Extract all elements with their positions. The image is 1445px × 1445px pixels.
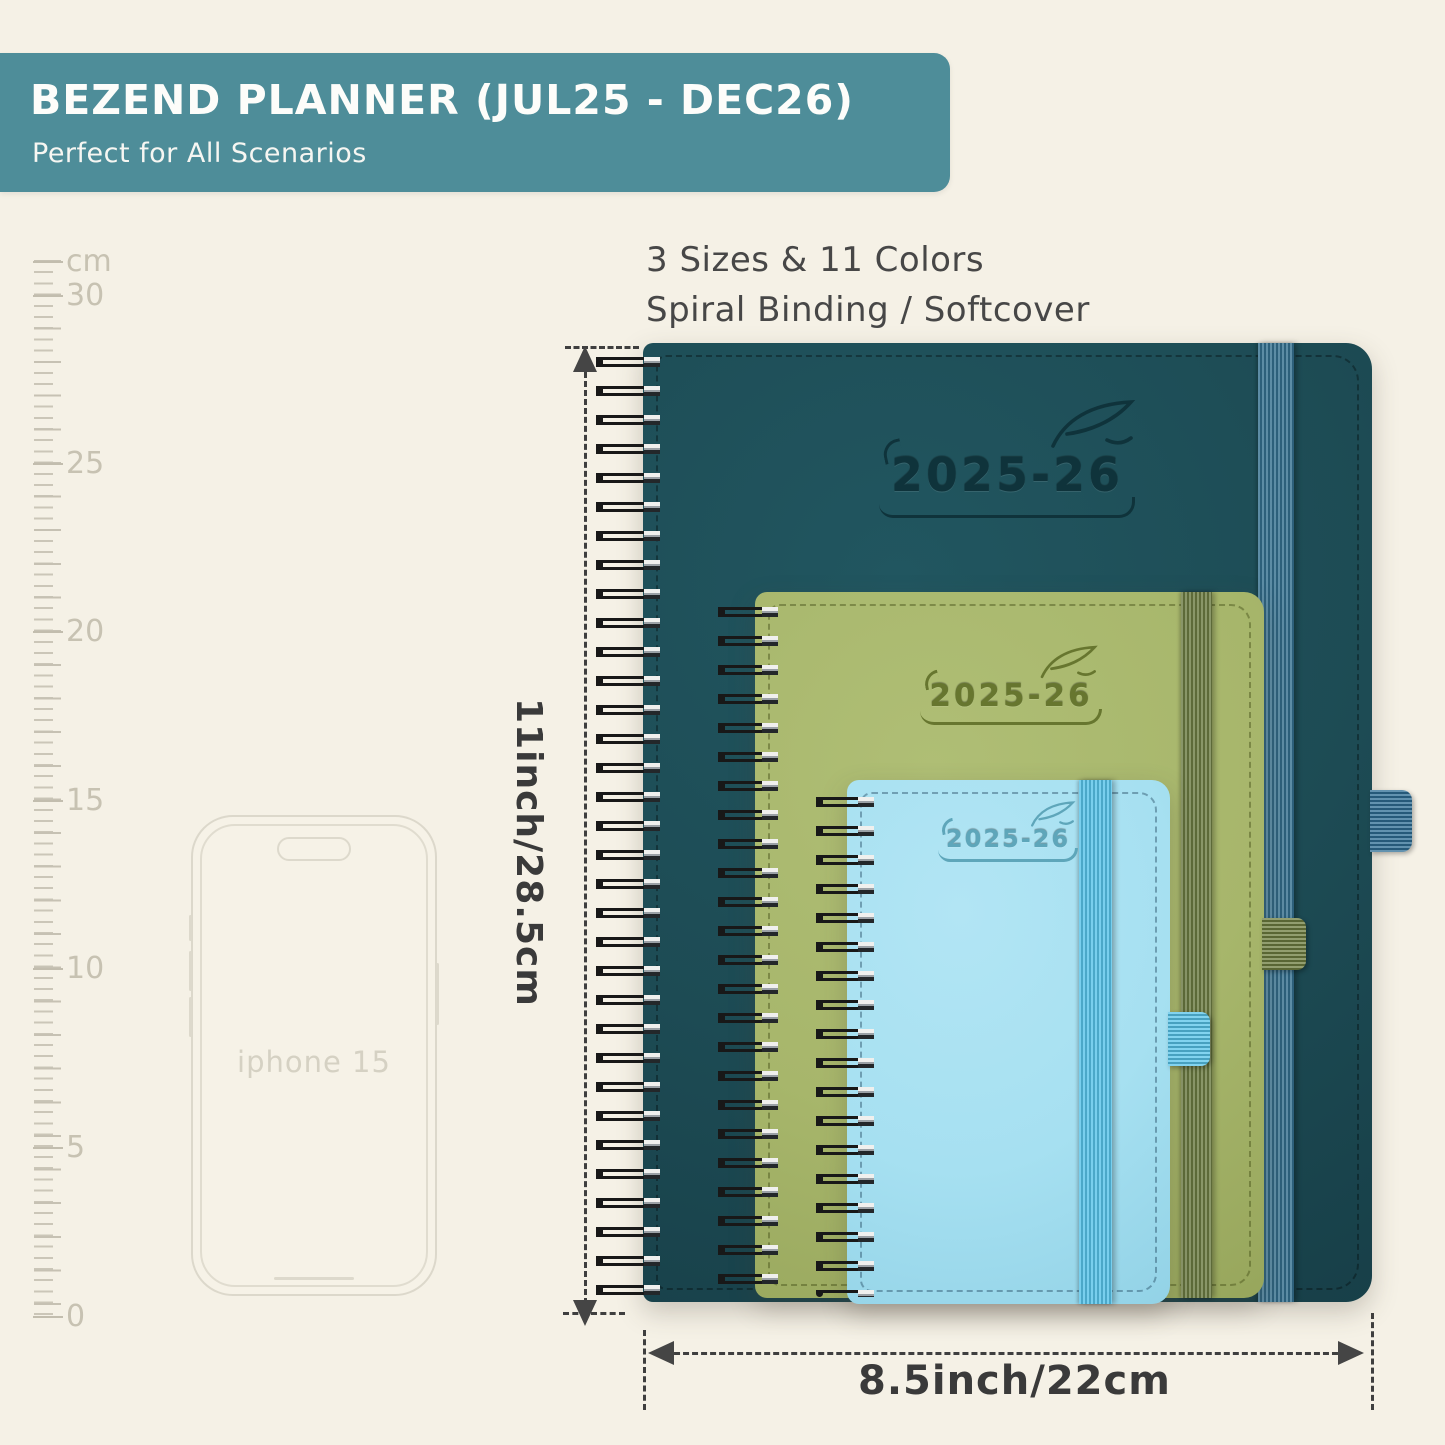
- width-dimension-line: [656, 1352, 1356, 1355]
- iphone-outline: iphone 15: [191, 815, 437, 1296]
- spiral-binding-medium: [718, 607, 778, 1293]
- cover-logo-large: 2025-26: [887, 448, 1127, 502]
- ruler-label-0: 0: [66, 1300, 136, 1334]
- ruler-label-25: 25: [66, 447, 136, 481]
- spiral-binding-small: [816, 797, 874, 1297]
- pen-loop-medium: [1262, 918, 1306, 970]
- ruler-label-20: 20: [66, 615, 136, 649]
- arrow-down-icon: [573, 1300, 597, 1326]
- iphone-power-button: [436, 963, 439, 1025]
- spiral-binding-large: [596, 357, 660, 1297]
- elastic-band-small: [1079, 780, 1112, 1304]
- spiral-clasps: [858, 797, 874, 1297]
- feather-icon: [1029, 799, 1077, 829]
- headline-sizes-colors: 3 Sizes & 11 Colors: [646, 240, 984, 280]
- banner-title: BEZEND PLANNER (JUL25 - DEC26): [30, 76, 930, 124]
- spiral-clasps: [644, 357, 660, 1297]
- iphone-volume-down-button: [189, 997, 192, 1037]
- iphone-mute-switch: [189, 915, 192, 941]
- spiral-loop-ends: [596, 357, 603, 1297]
- iphone-volume-up-button: [189, 951, 192, 991]
- logo-bracket-bottom: [920, 709, 1102, 725]
- ruler-label-15: 15: [66, 784, 136, 818]
- spiral-loop-ends: [816, 797, 823, 1297]
- ruler-unit-label: cm: [66, 245, 136, 279]
- iphone-dynamic-island: [277, 837, 351, 861]
- elastic-band-medium: [1181, 592, 1212, 1298]
- arrow-left-icon: [648, 1341, 674, 1365]
- iphone-home-bar: [274, 1277, 354, 1280]
- arrow-up-icon: [573, 346, 597, 372]
- logo-bracket-bottom: [879, 497, 1135, 518]
- height-dimension-label: 11inch/28.5cm: [508, 698, 549, 998]
- ruler-label-30: 30: [66, 279, 136, 313]
- ruler-label-10: 10: [66, 952, 136, 986]
- banner-subtitle: Perfect for All Scenarios: [32, 138, 732, 169]
- headline-binding-cover: Spiral Binding / Softcover: [646, 290, 1090, 330]
- width-dimension-left-tick: [643, 1330, 646, 1410]
- feather-icon: [1038, 643, 1100, 681]
- ruler-cm-ticks: [34, 260, 61, 1320]
- width-dimension-label: 8.5inch/22cm: [858, 1358, 1160, 1404]
- height-dimension-line: [584, 354, 587, 1322]
- arrow-right-icon: [1338, 1341, 1364, 1365]
- cover-logo-small: 2025-26: [943, 825, 1073, 853]
- spiral-clasps: [762, 607, 778, 1293]
- cover-logo-medium: 2025-26: [926, 678, 1096, 714]
- pen-loop-small: [1168, 1012, 1210, 1066]
- pen-loop-large: [1370, 790, 1412, 852]
- year-text-large: 2025-26: [891, 448, 1123, 502]
- logo-bracket-bottom: [938, 848, 1078, 862]
- spiral-loop-ends: [718, 607, 725, 1293]
- iphone-label: iphone 15: [193, 1045, 435, 1079]
- ruler-label-5: 5: [66, 1131, 136, 1165]
- feather-icon: [1047, 396, 1139, 452]
- width-dimension-right-tick: [1371, 1313, 1374, 1410]
